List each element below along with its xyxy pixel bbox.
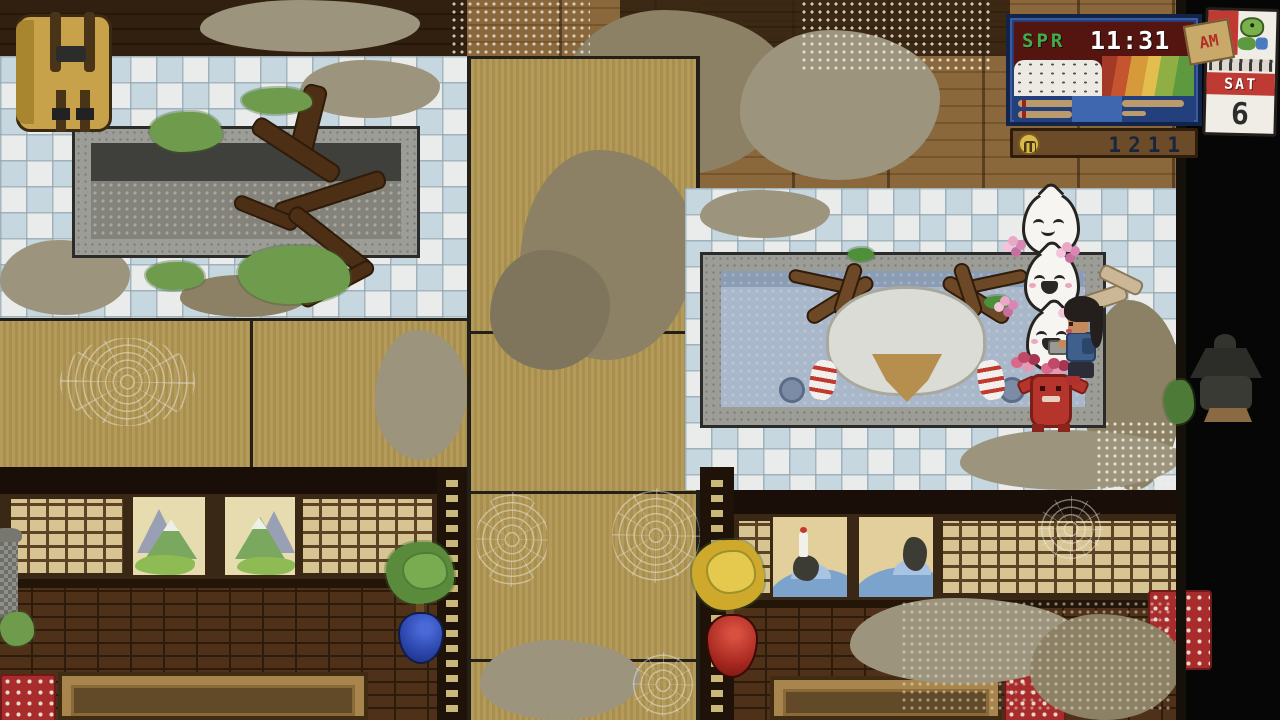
dust-speckles [450,0,590,55]
player-eye [1069,322,1073,326]
cobweb [476,492,548,587]
rock [903,537,927,571]
flower-blossoms [1008,236,1018,246]
spirit-cheek [1031,339,1038,344]
spirit-cheek [1029,283,1036,288]
turtle-eye [1250,23,1254,27]
crane-head [800,527,807,533]
green-field [135,555,195,575]
meter-track [1018,100,1074,107]
shoji-screen [8,496,126,576]
moss [146,262,204,290]
yellow-tree-red-pot [688,540,772,682]
plant-leaves [404,554,446,588]
player-lips [1066,329,1072,333]
dust-speckles [900,600,1170,710]
backpack [8,6,118,138]
calendar-day: SAT [1206,72,1275,96]
player-boot [1066,376,1080,385]
deer-spirit [788,248,1024,416]
crane [799,531,808,557]
oni-foot [1032,424,1044,432]
bonsai-plant-blue-pot [378,542,462,666]
player-character [1056,296,1106,392]
meter-track [1018,111,1072,118]
deer-ear [807,358,840,402]
food-art-vegetables [1102,56,1194,96]
dust-speckles [800,0,990,70]
deer-ear [975,358,1008,402]
wave-painting-1 [770,514,850,600]
moss [0,612,34,646]
wave-painting-2 [856,514,936,600]
floor-cushion-left [0,674,56,720]
coin-icon [1018,133,1040,155]
oni-mouth [1042,396,1060,402]
season-label: SPR [1022,30,1065,52]
lantern-body [1200,376,1252,410]
backpack-buckle [56,46,86,62]
oni-foot [1058,424,1070,432]
cobweb [612,488,700,583]
flower-blossoms-red [1018,352,1030,363]
game-viewport[interactable]: SPR 11:31 1211 SAT 6 AM [0,0,1280,720]
spirit-mouth [1041,225,1055,236]
backpack-side [16,20,34,124]
cobweb [1038,496,1104,562]
old-bath-shadow [91,143,401,181]
oni-eye [1040,386,1045,391]
money-plaque: 1211 [1010,128,1198,158]
clock-time: 11:31 [1090,26,1170,55]
turtle-shell-patch [1256,37,1268,49]
backpack-buckle [52,108,70,120]
mountain-painting-1 [130,494,208,578]
meter-highlight [1072,96,1122,122]
stone-lantern-right [1186,334,1268,436]
moss [242,88,312,114]
meridiem-tag: AM [1183,18,1235,65]
dust-speckles [1095,420,1180,490]
lantern-roof [1190,348,1262,378]
lantern-body [0,542,18,620]
antler-leaf [848,248,874,261]
cobweb [60,338,195,426]
snow-cap [251,517,267,529]
hud-bars [1014,96,1194,122]
meter-track [1122,100,1184,107]
low-table-left [58,672,368,720]
turtle-shell [1238,37,1256,50]
table-top [71,685,355,716]
hud-screen: SPR 11:31 [1014,22,1194,96]
mountain-painting-2 [222,494,298,578]
wall-lintel [734,490,1182,514]
meter-tick [1022,100,1026,107]
yellow-leaves [708,552,754,592]
moss [1164,380,1194,424]
hud-panel: SPR 11:31 [1006,14,1202,126]
player-hair-side [1090,306,1103,348]
wall-lintel [0,467,437,494]
flower-blossoms [1000,296,1010,306]
moss [238,246,350,304]
backpack-strap [84,12,95,72]
red-pot [706,614,758,678]
green-field [237,557,295,575]
calendar-date: 6 [1205,94,1274,134]
backpack-strap [50,12,61,72]
moss [150,112,222,152]
tatami-divider [250,321,253,467]
meter-tick [1022,111,1026,118]
rock [793,555,819,581]
meridiem-label: AM [1185,21,1233,64]
blue-pot [398,612,444,664]
meter-track [1122,111,1146,116]
spirit-mouth [1041,281,1058,294]
money-value: 1211 [1108,133,1187,157]
flower-blossoms [1062,242,1072,252]
spirit-cheek [1065,283,1072,288]
cobweb [632,652,694,717]
food-art-rice [1014,60,1102,96]
spirit-eye [1053,219,1064,229]
backpack-buckle [76,108,94,120]
lantern-base-soil [1204,408,1252,422]
wall-sill [0,579,437,588]
